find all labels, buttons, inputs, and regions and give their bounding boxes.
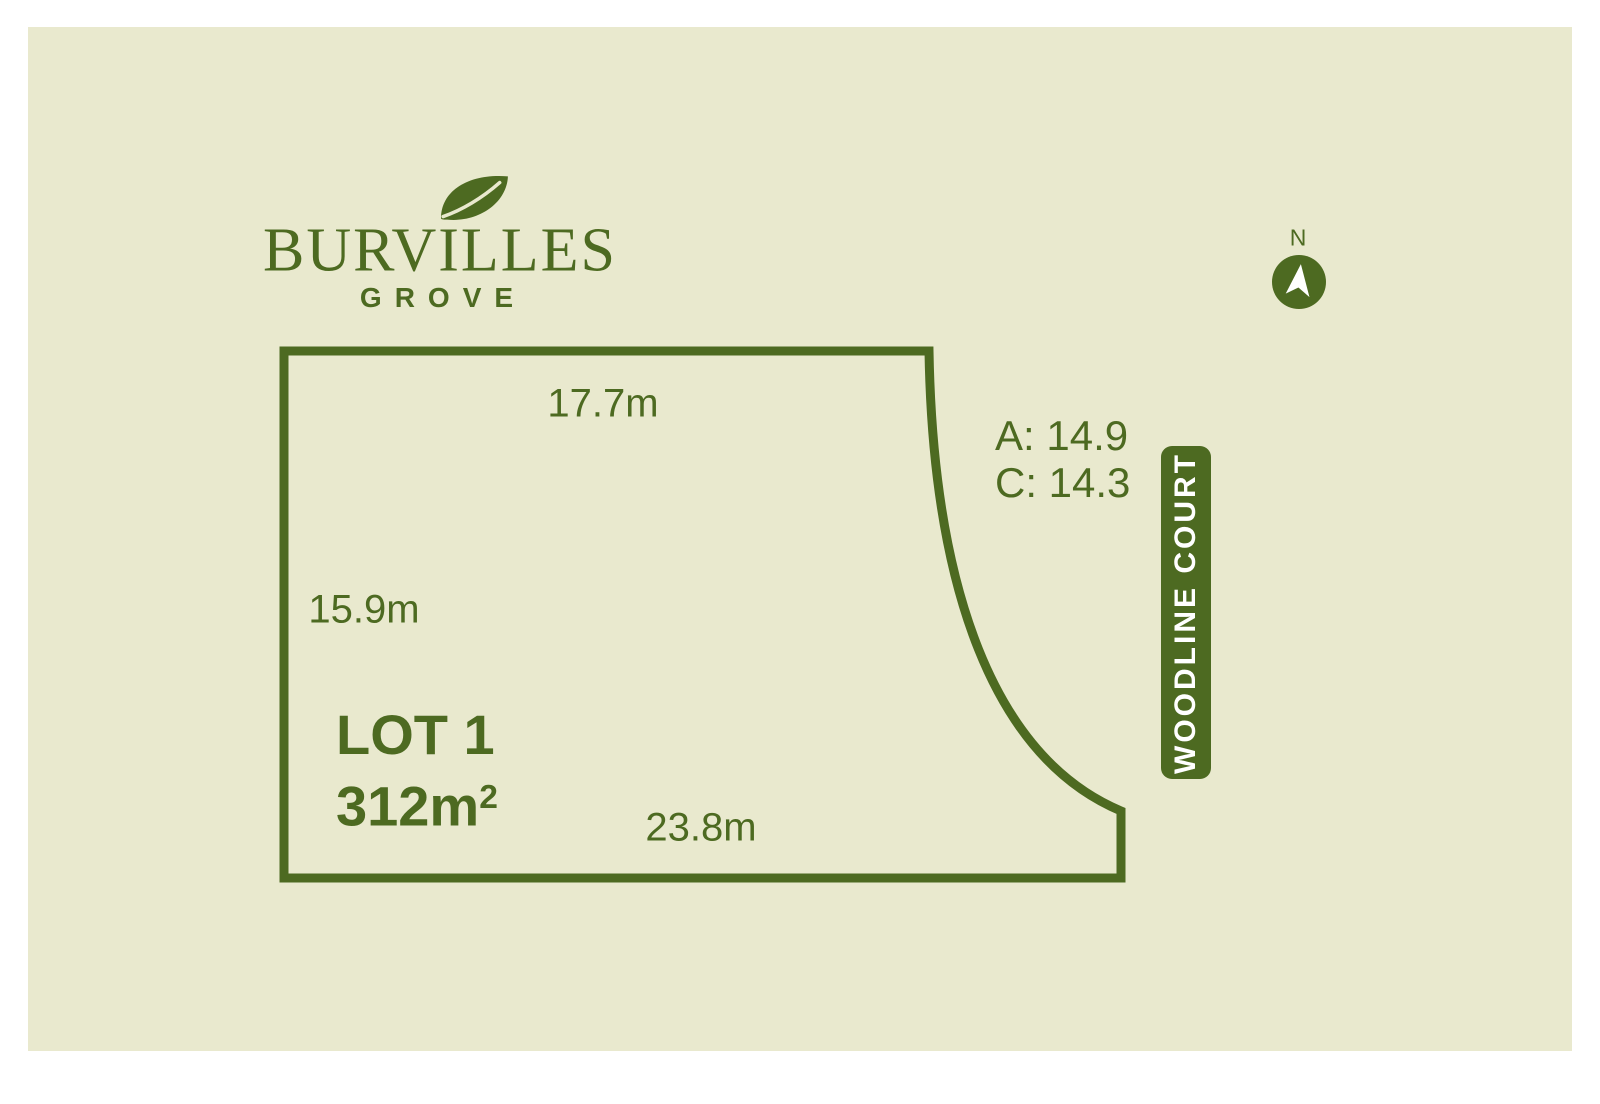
lot-name: LOT 1 (336, 703, 498, 766)
dimension-arc: A: 14.9 (995, 412, 1130, 459)
lot-area: 312m2 (336, 766, 498, 838)
dimension-curve: A: 14.9 C: 14.3 (995, 412, 1130, 506)
lot-area-exponent: 2 (479, 779, 498, 816)
dimension-left: 15.9m (308, 588, 419, 633)
lot-label: LOT 1 312m2 (336, 703, 498, 838)
dimension-bottom: 23.8m (645, 806, 756, 851)
north-label: N (1290, 225, 1307, 252)
dimension-chord: C: 14.3 (995, 459, 1130, 506)
brand-subtitle: GROVE (360, 282, 526, 314)
street-name-badge: WOODLINE COURT (1161, 446, 1211, 779)
leaf-icon (439, 172, 511, 222)
street-name: WOODLINE COURT (1169, 452, 1203, 774)
plan-canvas: BURVILLES GROVE N 17.7m 15.9m 23.8m A: 1… (28, 27, 1572, 1051)
dimension-top: 17.7m (547, 382, 658, 427)
brand-name: BURVILLES (263, 216, 617, 287)
lot-plan-drawing (28, 27, 1600, 1104)
north-arrow-icon (1272, 255, 1326, 309)
